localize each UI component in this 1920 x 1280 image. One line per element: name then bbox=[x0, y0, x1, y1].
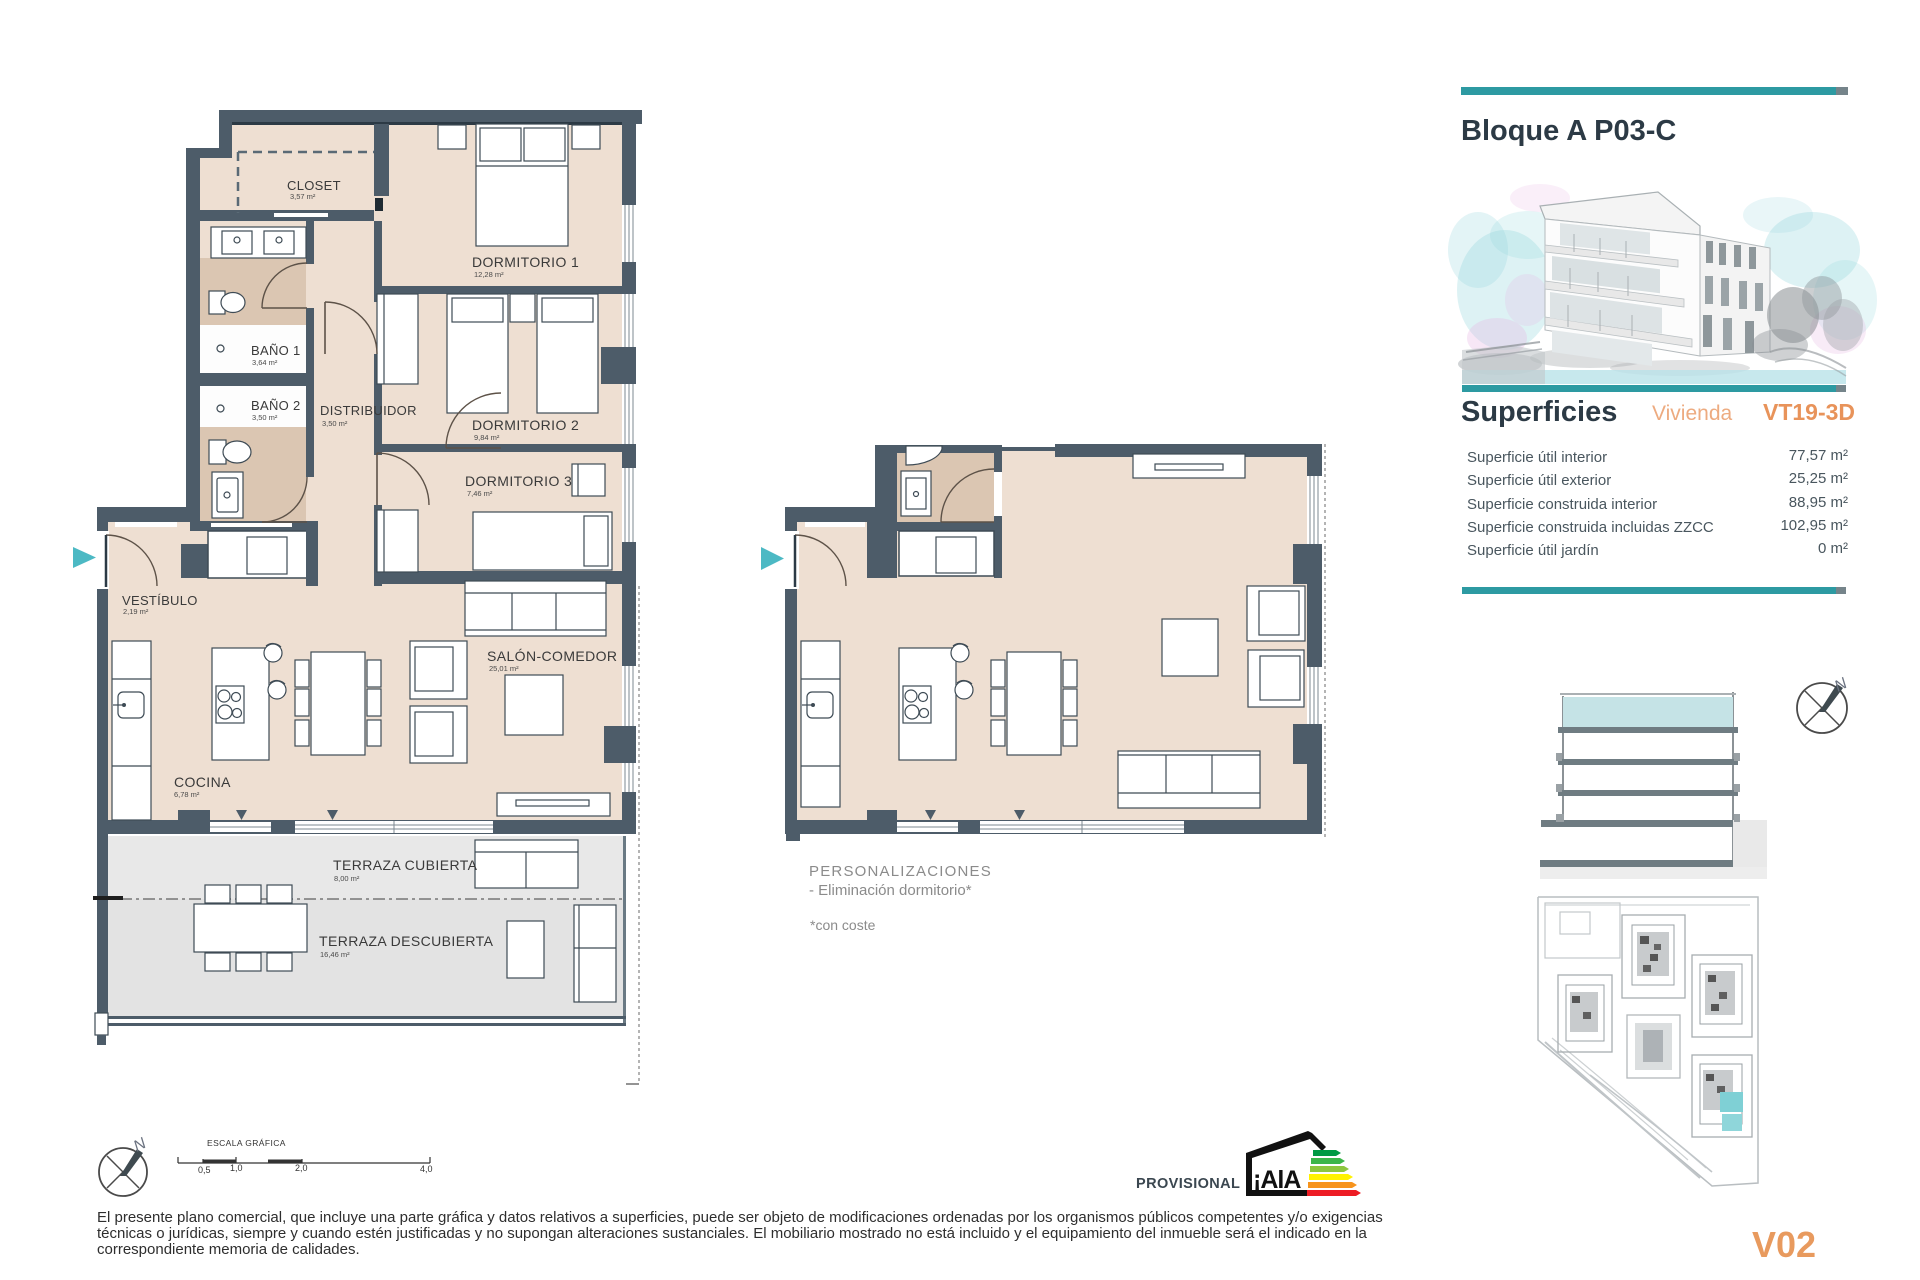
svg-text:correspondiente memoria de cal: correspondiente memoria de calidades. bbox=[97, 1241, 360, 1258]
svg-text:Bloque A P03-C: Bloque A P03-C bbox=[1461, 115, 1676, 147]
svg-text:técnicas o jurídicas, siempre: técnicas o jurídicas, siempre y cuando e… bbox=[97, 1225, 1368, 1242]
svg-text:2,0: 2,0 bbox=[295, 1163, 308, 1173]
svg-text:¡AlA: ¡AlA bbox=[1253, 1166, 1301, 1194]
svg-text:4,0: 4,0 bbox=[420, 1164, 433, 1174]
svg-text:CLOSET: CLOSET bbox=[287, 178, 341, 193]
svg-text:V02: V02 bbox=[1752, 1224, 1816, 1265]
svg-text:TERRAZA DESCUBIERTA: TERRAZA DESCUBIERTA bbox=[319, 933, 494, 949]
svg-text:Superficie construida incluida: Superficie construida incluidas ZZCC bbox=[1467, 519, 1714, 536]
svg-text:88,95 m²: 88,95 m² bbox=[1789, 494, 1848, 511]
svg-text:9,84 m²: 9,84 m² bbox=[474, 433, 500, 442]
svg-text:ESCALA GRÁFICA: ESCALA GRÁFICA bbox=[207, 1138, 286, 1148]
svg-text:Superficies: Superficies bbox=[1461, 396, 1617, 428]
svg-text:12,28 m²: 12,28 m² bbox=[474, 270, 504, 279]
svg-text:DORMITORIO 1: DORMITORIO 1 bbox=[472, 254, 579, 270]
svg-text:COCINA: COCINA bbox=[174, 774, 231, 790]
svg-text:DORMITORIO 2: DORMITORIO 2 bbox=[472, 417, 579, 433]
svg-text:3,57 m²: 3,57 m² bbox=[290, 192, 316, 201]
svg-text:102,95 m²: 102,95 m² bbox=[1780, 517, 1848, 534]
svg-text:2,19 m²: 2,19 m² bbox=[123, 607, 149, 616]
svg-text:PERSONALIZACIONES: PERSONALIZACIONES bbox=[809, 863, 992, 880]
svg-text:Superficie útil jardín: Superficie útil jardín bbox=[1467, 542, 1599, 559]
svg-text:3,50 m²: 3,50 m² bbox=[322, 419, 348, 428]
svg-text:PROVISIONAL: PROVISIONAL bbox=[1136, 1176, 1240, 1192]
svg-text:VT19-3D: VT19-3D bbox=[1763, 399, 1855, 425]
svg-text:Superficie construida interior: Superficie construida interior bbox=[1467, 496, 1657, 513]
svg-text:TERRAZA CUBIERTA: TERRAZA CUBIERTA bbox=[333, 857, 478, 873]
svg-text:0,5: 0,5 bbox=[198, 1165, 211, 1175]
svg-text:77,57 m²: 77,57 m² bbox=[1789, 447, 1848, 464]
svg-text:VESTÍBULO: VESTÍBULO bbox=[122, 593, 198, 608]
svg-text:*con coste: *con coste bbox=[810, 917, 876, 933]
svg-text:DORMITORIO 3: DORMITORIO 3 bbox=[465, 473, 572, 489]
svg-text:BAÑO 2: BAÑO 2 bbox=[251, 398, 300, 413]
svg-text:1,0: 1,0 bbox=[230, 1163, 243, 1173]
svg-text:6,78 m²: 6,78 m² bbox=[174, 790, 200, 799]
svg-text:Vivienda: Vivienda bbox=[1652, 402, 1732, 425]
svg-text:El presente plano comercial, q: El presente plano comercial, que incluye… bbox=[97, 1209, 1383, 1226]
svg-text:8,00 m²: 8,00 m² bbox=[334, 874, 360, 883]
svg-text:Superficie útil exterior: Superficie útil exterior bbox=[1467, 472, 1611, 489]
svg-text:BAÑO 1: BAÑO 1 bbox=[251, 343, 300, 358]
svg-text:16,46 m²: 16,46 m² bbox=[320, 950, 350, 959]
svg-text:25,01 m²: 25,01 m² bbox=[489, 664, 519, 673]
svg-text:3,64 m²: 3,64 m² bbox=[252, 358, 278, 367]
svg-text:7,46 m²: 7,46 m² bbox=[467, 489, 493, 498]
svg-text:25,25 m²: 25,25 m² bbox=[1789, 470, 1848, 487]
svg-text:- Eliminación dormitorio*: - Eliminación dormitorio* bbox=[809, 882, 972, 899]
svg-text:DISTRIBUIDOR: DISTRIBUIDOR bbox=[320, 403, 417, 418]
svg-text:N: N bbox=[131, 1135, 150, 1156]
svg-text:SALÓN-COMEDOR: SALÓN-COMEDOR bbox=[487, 648, 617, 664]
svg-text:0 m²: 0 m² bbox=[1818, 540, 1848, 557]
svg-text:Superficie útil interior: Superficie útil interior bbox=[1467, 449, 1607, 466]
svg-text:3,50 m²: 3,50 m² bbox=[252, 413, 278, 422]
